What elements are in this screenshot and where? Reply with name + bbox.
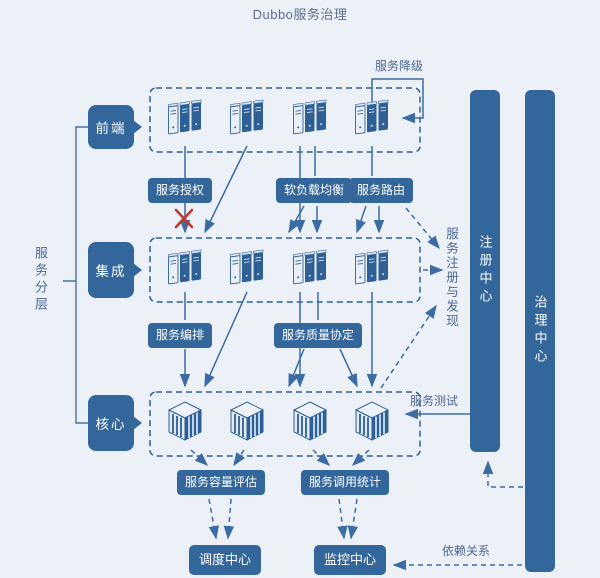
capacity-eval-tag: 服务容量评估 (177, 470, 265, 495)
server-cluster-icon (356, 100, 389, 134)
layer-label: 核心 (96, 413, 127, 433)
dispatch-center-box: 调度中心 (189, 545, 261, 575)
orchestration-tag: 服务编排 (148, 323, 212, 348)
invoke-stats-tag: 服务调用统计 (301, 470, 389, 495)
layer-bracket (63, 127, 88, 423)
page-title: Dubbo服务治理 (0, 4, 600, 23)
server-cluster-icon (169, 250, 202, 284)
qos-agreement-tag: 服务质量协定 (274, 323, 362, 348)
route-tag: 服务路由 (349, 178, 413, 203)
auth-tag: 服务授权 (148, 178, 212, 203)
server-cluster-icon (231, 250, 264, 284)
server-cluster-icon (356, 250, 389, 284)
dubbo-governance-diagram: Dubbo服务治理 服务分层 前端 集成 核心 服务降级 服务授权 软负载均衡 … (0, 0, 600, 578)
service-test-label: 服务测试 (410, 392, 458, 409)
layer-group-label: 服务分层 (33, 246, 47, 314)
registry-center-bar: 注册中心 (470, 90, 500, 452)
server-cluster-icon (294, 250, 327, 284)
layer-box-core: 核心 (88, 395, 134, 451)
layer-box-integration: 集成 (88, 242, 134, 298)
server-cluster-icon (294, 100, 327, 134)
dependency-label: 依赖关系 (442, 542, 490, 559)
layer-box-frontend: 前端 (88, 105, 134, 149)
layer-label: 集成 (96, 260, 127, 280)
solid-connectors (185, 79, 470, 414)
service-cube-icon (294, 402, 326, 440)
degrade-label: 服务降级 (375, 57, 423, 74)
governance-center-bar: 治理中心 (525, 90, 555, 572)
registry-feedback-arrow (488, 462, 523, 487)
blocked-x-icon (176, 210, 192, 227)
service-cube-icon (231, 402, 263, 440)
soft-load-balance-tag: 软负载均衡 (276, 178, 352, 203)
layer-label: 前端 (96, 117, 127, 137)
server-cluster-icon (169, 100, 202, 134)
service-cube-icon (356, 402, 388, 440)
server-cluster-icon (231, 100, 264, 134)
registry-discovery-label: 服务注册与发现 (444, 227, 458, 329)
monitor-center-box: 监控中心 (314, 545, 386, 575)
service-cube-icon (169, 402, 201, 440)
